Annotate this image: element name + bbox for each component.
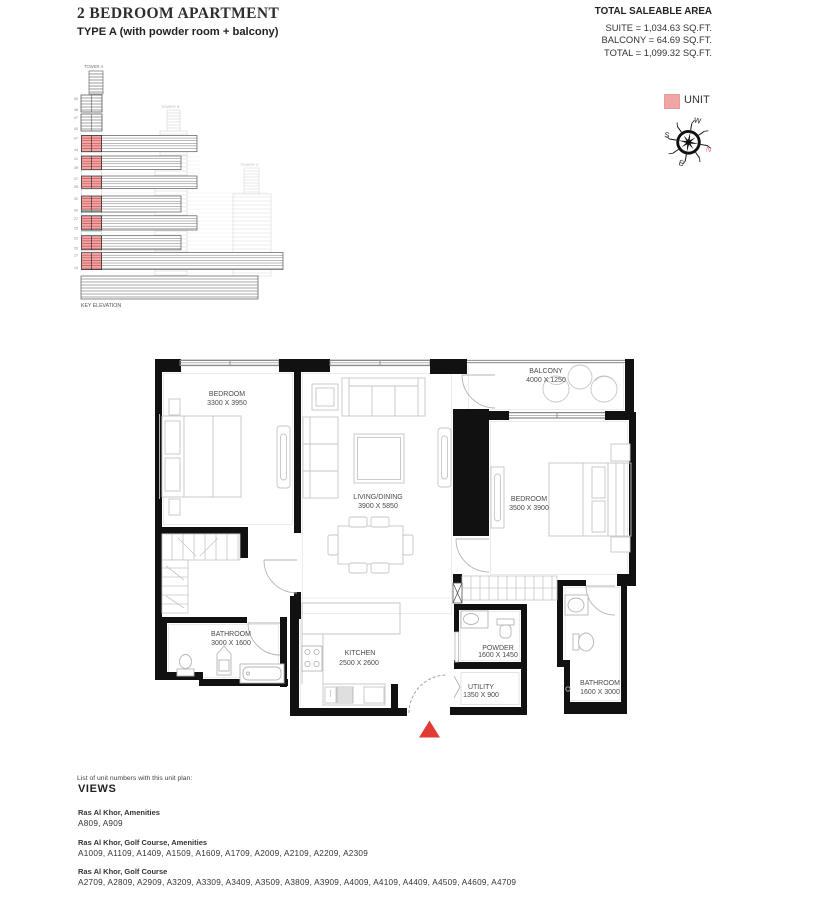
svg-text:50: 50 [74,97,78,101]
svg-text:39: 39 [74,166,78,170]
svg-text:UTILITY: UTILITY [468,684,494,691]
svg-text:45: 45 [74,127,78,131]
svg-text:N: N [705,144,712,154]
svg-text:47: 47 [74,137,78,141]
svg-text:48: 48 [74,108,78,112]
svg-text:1350 X 900: 1350 X 900 [463,692,499,699]
svg-text:POWDER: POWDER [482,645,514,652]
svg-text:35: 35 [74,185,78,189]
svg-text:TOWER B: TOWER B [161,104,180,109]
svg-text:BATHROOM: BATHROOM [580,680,620,687]
svg-text:3000 X 1600: 3000 X 1600 [211,640,251,647]
svg-text:2500 X 2600: 2500 X 2600 [339,660,379,667]
svg-text:BATHROOM: BATHROOM [211,631,251,638]
svg-text:27: 27 [74,217,78,221]
svg-text:14: 14 [74,266,78,270]
svg-text:3900 X 5850: 3900 X 5850 [358,503,398,510]
svg-text:1600 X 3000: 1600 X 3000 [580,689,620,696]
svg-text:BALCONY: BALCONY [529,368,563,375]
svg-text:TOWER C: TOWER C [240,162,259,167]
svg-text:44: 44 [74,148,78,152]
svg-text:37: 37 [74,177,78,181]
svg-text:17: 17 [74,254,78,258]
svg-text:LIVING/DINING: LIVING/DINING [353,494,402,501]
svg-text:BEDROOM: BEDROOM [209,391,245,398]
svg-text:KITCHEN: KITCHEN [345,650,376,657]
svg-text:BEDROOM: BEDROOM [511,496,547,503]
svg-text:W: W [693,115,703,125]
svg-text:E: E [678,158,685,168]
svg-text:30: 30 [74,209,78,213]
svg-text:25: 25 [74,227,78,231]
svg-text:3300 X 3950: 3300 X 3950 [207,400,247,407]
svg-text:3500 X 3900: 3500 X 3900 [509,505,549,512]
svg-text:47: 47 [74,116,78,120]
svg-text:1600 X 1450: 1600 X 1450 [478,652,518,659]
svg-text:KEY ELEVATION: KEY ELEVATION [81,303,121,309]
svg-text:20: 20 [74,246,78,250]
svg-text:41: 41 [74,157,78,161]
svg-text:32: 32 [74,197,78,201]
svg-text:22: 22 [74,237,78,241]
svg-text:TOWER A: TOWER A [84,64,103,69]
svg-text:4000 X 1250: 4000 X 1250 [526,377,566,384]
